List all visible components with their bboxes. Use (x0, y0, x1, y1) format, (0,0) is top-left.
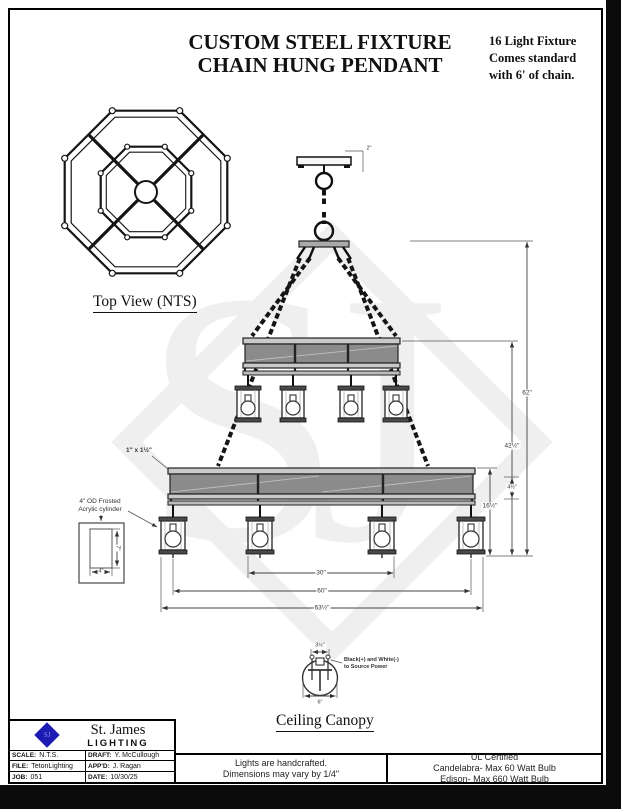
date-value: 10/30/25 (110, 774, 137, 781)
title-block: SJ St. James LIGHTING SCALE:N.T.S. DRAFT… (8, 719, 176, 784)
job-value: 051 (31, 774, 43, 781)
drawing-sheet: SJ (0, 0, 621, 809)
file-value: TetonLighting (31, 763, 73, 770)
certification-line1: UL Certified (471, 752, 518, 763)
certification-note: UL Certified Candelabra- Max 60 Watt Bul… (388, 755, 601, 782)
company-division: LIGHTING (62, 738, 174, 749)
file-label: FILE: (12, 763, 28, 770)
company-logo-icon: SJ (34, 722, 59, 747)
title-block-row-job: JOB:051 DATE:10/30/25 (10, 771, 174, 782)
scale-label: SCALE: (12, 752, 36, 759)
draft-value: Y. McCullough (114, 752, 159, 759)
draft-label: DRAFT: (88, 752, 111, 759)
scan-edge-bottom (0, 785, 621, 809)
title-block-row-scale: SCALE:N.T.S. DRAFT:Y. McCullough (10, 750, 174, 761)
certification-line2: Candelabra- Max 60 Watt Bulb (433, 763, 556, 774)
date-label: DATE: (88, 774, 107, 781)
footer-strip: Lights are handcrafted. Dimensions may v… (174, 753, 603, 784)
appd-label: APP'D: (88, 763, 110, 770)
handcrafted-note-line2: Dimensions may vary by 1/4" (223, 769, 339, 780)
handcrafted-note-line1: Lights are handcrafted. (235, 758, 327, 769)
appd-value: J. Ragan (113, 763, 141, 770)
job-label: JOB: (12, 774, 28, 781)
scale-value: N.T.S. (39, 752, 58, 759)
sheet-border (8, 8, 603, 784)
handcrafted-note: Lights are handcrafted. Dimensions may v… (176, 755, 388, 782)
title-block-row-file: FILE:TetonLighting APP'D:J. Ragan (10, 760, 174, 771)
logo-monogram: SJ (44, 731, 51, 739)
title-block-logo-row: SJ St. James LIGHTING (10, 721, 174, 750)
certification-line3: Edison- Max 660 Watt Bulb (440, 774, 549, 785)
scan-edge-right (606, 0, 621, 809)
company-name: St. James (62, 722, 174, 738)
